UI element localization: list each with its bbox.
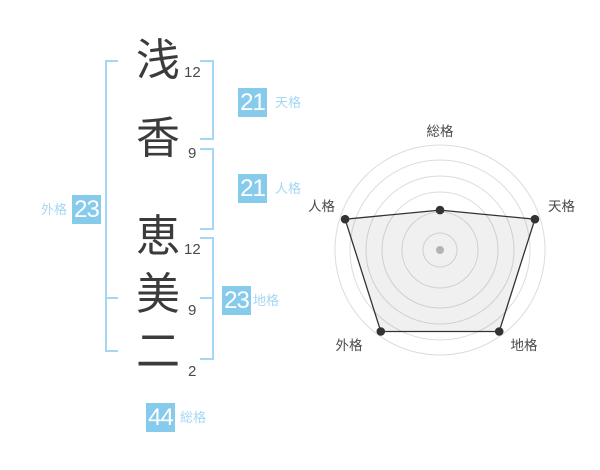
gaikaku-label: 外格 xyxy=(41,203,67,216)
stroke-count-5: 2 xyxy=(188,364,196,379)
bracket-tick xyxy=(200,228,214,230)
bracket-tick xyxy=(105,60,118,62)
soukaku-value-badge: 44 xyxy=(146,403,175,432)
name-kanji-4: 美 xyxy=(136,273,180,317)
tenkaku-bracket-line xyxy=(212,60,214,140)
radar-vertex-dot xyxy=(377,327,386,336)
radar-polygon xyxy=(345,210,535,331)
jinkaku-value-badge: 21 xyxy=(238,174,267,203)
stroke-count-3: 12 xyxy=(184,242,201,257)
radar-axis-label: 天格 xyxy=(548,199,576,214)
radar-axis-label: 地格 xyxy=(511,338,539,353)
radar-vertex-dot xyxy=(341,215,350,224)
bracket-tick xyxy=(105,350,118,352)
name-kanji-1: 浅 xyxy=(136,39,180,83)
stroke-count-4: 9 xyxy=(188,303,196,318)
radar-chart: 総格天格地格外格人格 xyxy=(290,100,590,400)
name-kanji-5: 二 xyxy=(136,330,180,374)
chikaku-value-badge: 23 xyxy=(222,286,251,315)
name-kanji-3: 恵 xyxy=(136,215,180,259)
soukaku-label: 総格 xyxy=(180,411,206,424)
stroke-count-2: 9 xyxy=(188,146,196,161)
bracket-tick xyxy=(200,237,214,239)
name-fortune-result: 浅 香 恵 美 二 12 9 12 9 2 21 天格 21 人格 23 地格 … xyxy=(0,0,600,470)
radar-axis-label: 総格 xyxy=(427,124,454,139)
tenkaku-value-badge: 21 xyxy=(238,88,267,117)
jinkaku-bracket-line xyxy=(212,148,214,230)
radar-axis-label: 人格 xyxy=(308,199,335,214)
gaikaku-bracket-line xyxy=(105,60,107,352)
gaikaku-value-badge: 23 xyxy=(72,195,101,224)
stroke-count-1: 12 xyxy=(184,65,201,80)
radar-vertex-dot xyxy=(531,215,540,224)
bracket-tick xyxy=(200,358,214,360)
radar-axis-label: 外格 xyxy=(336,338,363,353)
bracket-tick xyxy=(105,297,118,299)
name-kanji-2: 香 xyxy=(136,117,180,161)
radar-vertex-dot xyxy=(495,327,504,336)
chikaku-label: 地格 xyxy=(253,294,279,307)
radar-vertex-dot xyxy=(436,206,445,215)
bracket-tick xyxy=(200,138,214,140)
bracket-tick xyxy=(200,148,214,150)
bracket-tick xyxy=(200,297,214,299)
bracket-tick xyxy=(200,60,214,62)
